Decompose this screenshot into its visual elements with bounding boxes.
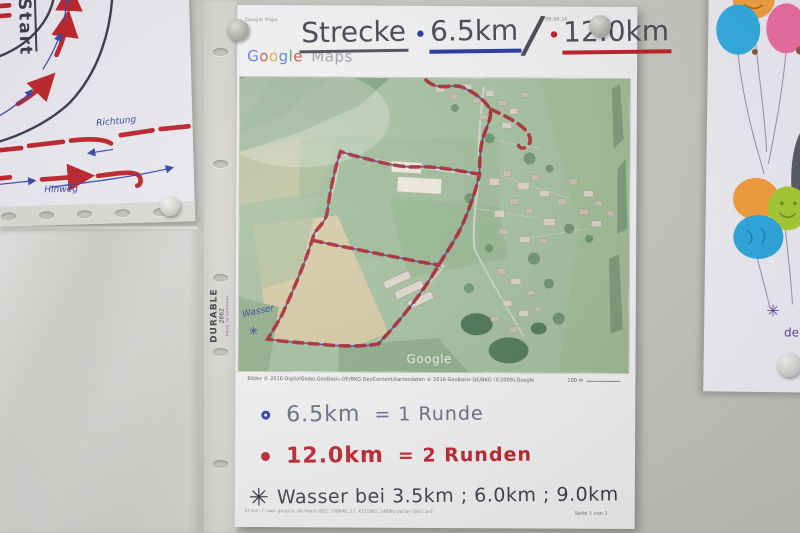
legend-rest-two-laps: = 2 Runden <box>398 443 532 466</box>
legend-row-one-lap: 6.5km = 1 Runde <box>261 401 484 428</box>
title-bullet-red: • <box>547 26 560 48</box>
logo-letter-g: G <box>247 47 259 65</box>
map-water-symbol: ✳ <box>249 324 259 338</box>
durable-brand-label: DURABLE 2662 MADE IN GERMANY <box>210 276 229 356</box>
print-header-left: Google Maps <box>245 17 277 23</box>
logo-letter-g2: g <box>279 47 289 65</box>
title-distance-long: 12.0km <box>562 14 671 54</box>
legend-bullet-dot-red <box>261 452 270 461</box>
balloons-poster: ✳ 5 de <box>703 0 800 393</box>
balloons-drawing: ✳ 5 de <box>703 0 800 393</box>
balloon-strings <box>734 20 796 307</box>
title-bullet-blue: • <box>414 25 427 47</box>
satellite-map: Wasser ✳ Google <box>238 77 630 373</box>
hinweg-label: Hinweg <box>44 184 78 195</box>
map-scale-bar <box>586 380 620 381</box>
empty-plastic-sleeve <box>0 226 197 533</box>
satellite-map-svg: Wasser ✳ Google <box>238 77 630 373</box>
logo-letter-o1: o <box>259 47 269 65</box>
legend-distance-long: 12.0km <box>286 443 384 469</box>
water-asterisk-icon: ✳ <box>249 483 269 511</box>
legend-row-two-laps: 12.0km = 2 Runden <box>261 442 532 469</box>
title-slash: / <box>521 17 545 55</box>
legend-water-label: Wasser bei 3.5km ; 6.0km ; 9.0km <box>277 483 619 508</box>
pushpin-top-right <box>589 15 611 37</box>
balloons-asterisk: ✳ <box>766 301 780 320</box>
title-distance-short: 6.5km <box>429 14 522 54</box>
legend-distance-short: 6.5km <box>286 402 360 428</box>
map-scale: 100 m <box>567 378 620 384</box>
start-diagram-poster: Start Ri <box>0 0 195 227</box>
start-label: Start <box>14 0 36 56</box>
balloons-fragment-bottom: de <box>784 325 799 339</box>
google-watermark: Google <box>406 352 451 366</box>
richtung-label: Richtung <box>96 115 137 129</box>
footer-url: https://www.google.de/maps/@52.198048,11… <box>245 509 433 515</box>
legend-rest-one-lap: = 1 Runde <box>374 402 483 425</box>
map-scale-label: 100 m <box>567 378 583 384</box>
legend-row-water: ✳ Wasser bei 3.5km ; 6.0km ; 9.0km <box>249 480 619 511</box>
start-diagram-drawing: Start Ri <box>0 0 195 205</box>
pushpin-top-left <box>227 19 249 41</box>
title-route-word: Strecke <box>299 15 408 54</box>
map-printout-page: Google Maps 06.06.16 Google Maps Strecke… <box>235 5 638 529</box>
handwritten-title: Strecke • 6.5km / • 12.0km <box>299 13 671 54</box>
durable-sleeve-strip: DURABLE 2662 MADE IN GERMANY <box>204 0 239 533</box>
legend-bullet-ring-blue <box>261 411 270 420</box>
balloons-middle-cluster <box>732 178 800 260</box>
logo-letter-o2: o <box>269 47 279 65</box>
balloons-top-cluster <box>716 0 800 56</box>
pushpin-balloons-poster <box>777 353 800 377</box>
photo-scene: Start Ri <box>0 0 800 533</box>
map-attribution: Bilder © 2016 DigitalGlobe,GeoBasis-DE/B… <box>247 376 547 384</box>
durable-origin: MADE IN GERMANY <box>226 276 230 356</box>
pushpin-left-poster <box>160 196 180 216</box>
footer-page-info: Seite 1 von 1 <box>575 511 608 517</box>
